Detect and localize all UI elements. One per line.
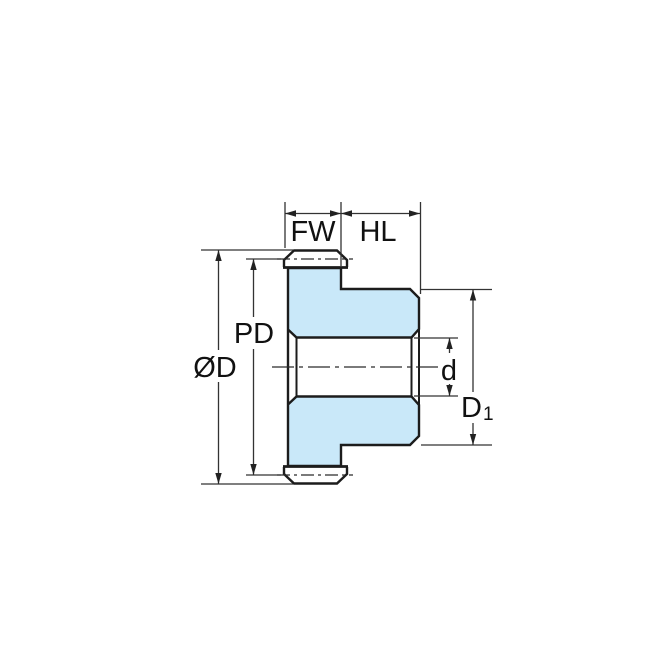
outside-diameter-label: ØD [193,352,237,384]
gear-diagram: FW HL ØD PD d D 1 [0,0,670,670]
hub-diameter-subscript: 1 [483,404,494,425]
pitch-diameter-label: PD [234,318,274,350]
hub-length-label: HL [359,216,396,248]
bore-diameter-label: d [441,355,457,387]
hub-diameter-label: D [461,392,482,424]
face-width-label: FW [290,216,336,248]
drawing-canvas: FW HL ØD PD d D 1 [0,0,670,670]
